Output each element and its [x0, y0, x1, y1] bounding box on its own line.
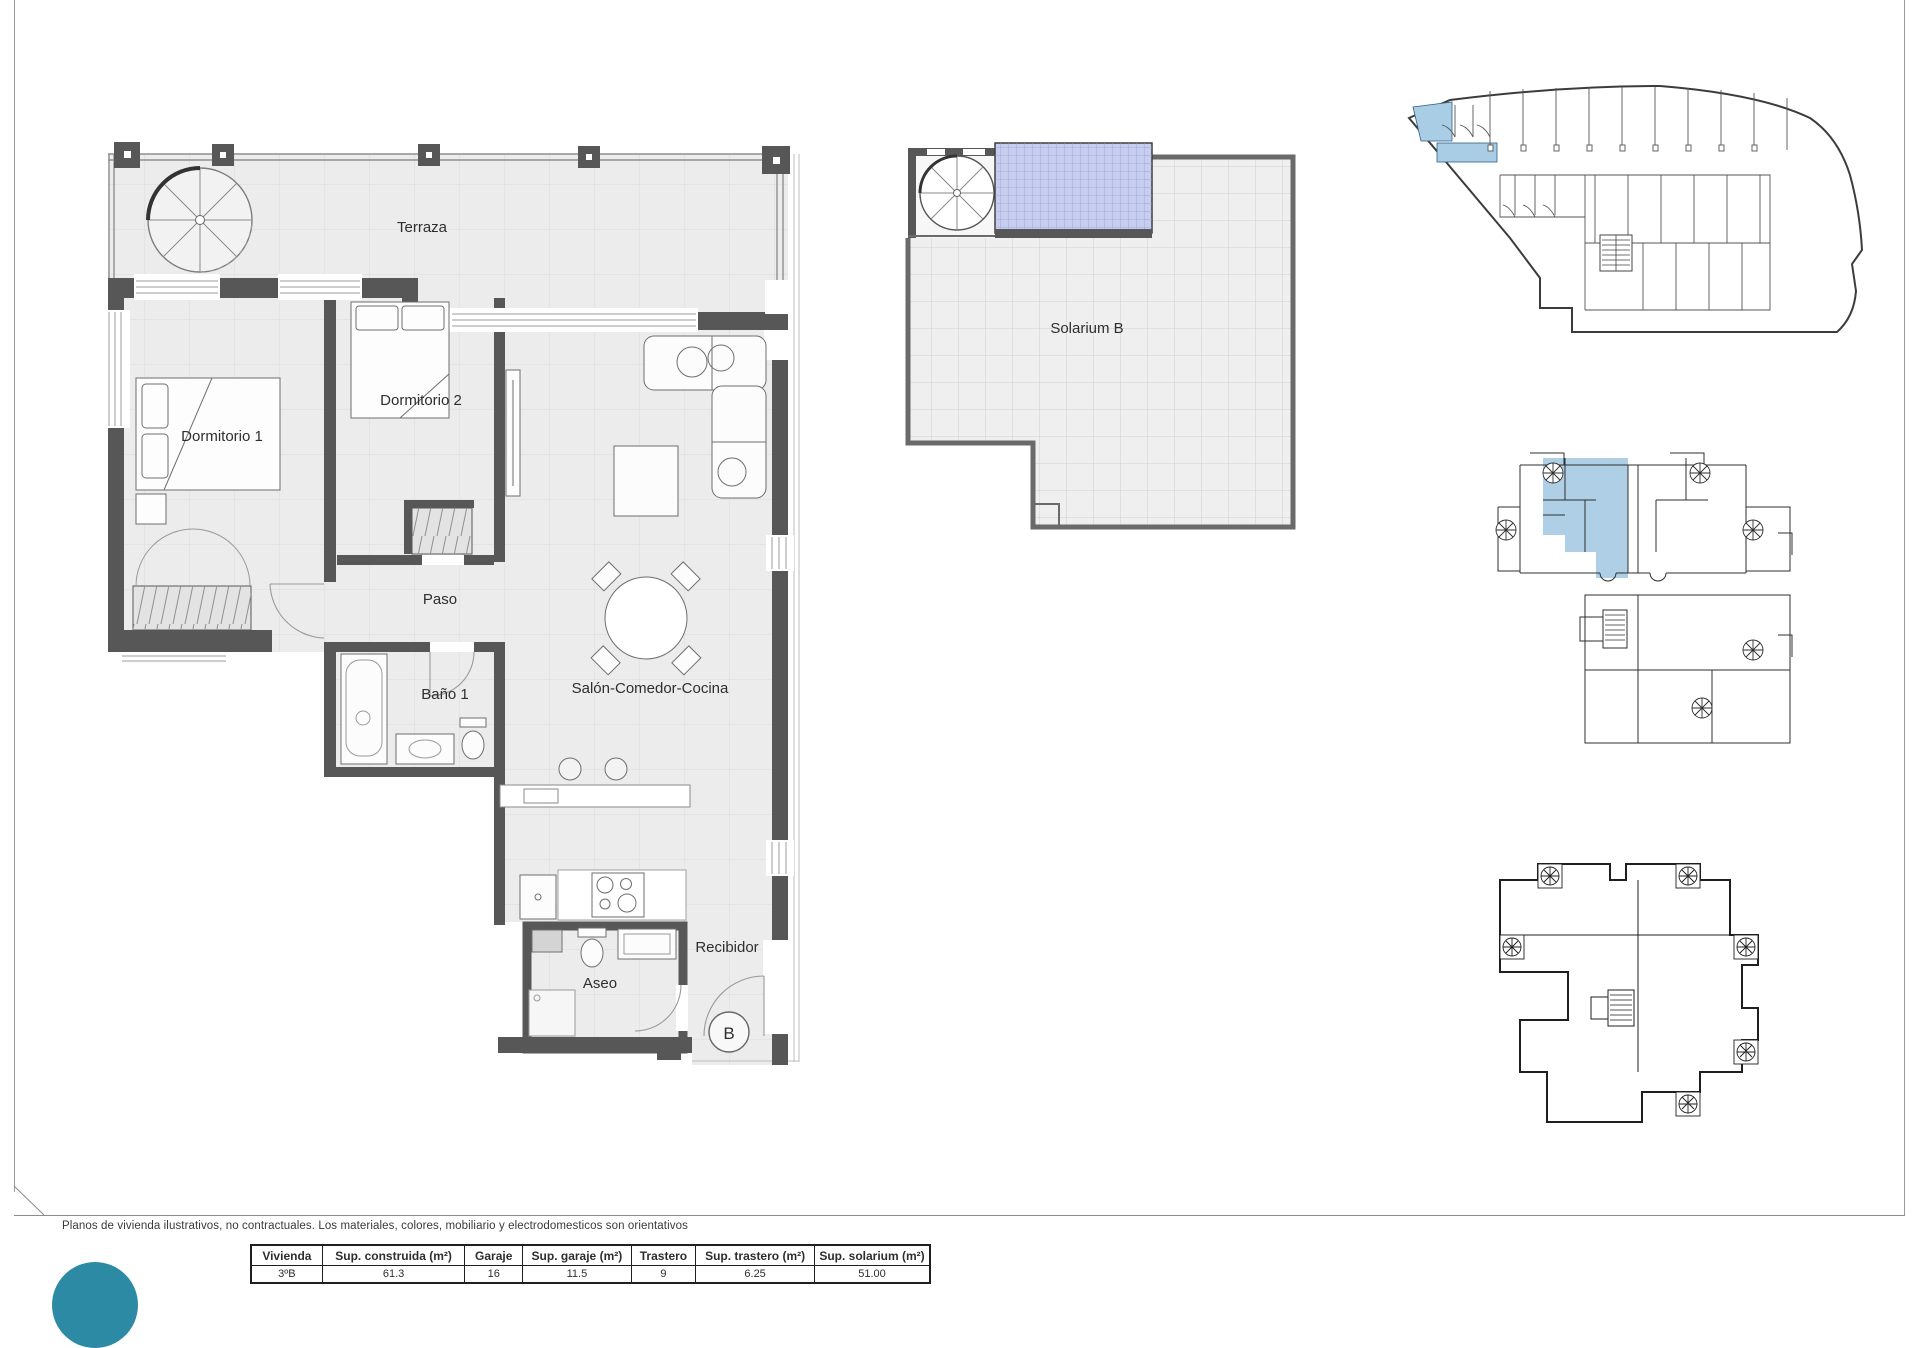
label-salon: Salón-Comedor-Cocina	[572, 680, 729, 697]
building-lines	[1498, 453, 1792, 743]
unit-letter-badge: B	[709, 1012, 749, 1052]
stair-core	[1603, 610, 1627, 648]
coffee-table	[614, 446, 678, 516]
cell-vivienda: 3ºB	[251, 1266, 322, 1284]
floorplan-sheet: { "document": { "disclaimer": "Planos de…	[0, 0, 1920, 1280]
col-sup-construida: Sup. construida (m²)	[322, 1245, 465, 1266]
unit-letter: B	[723, 1024, 734, 1043]
footer-rule	[14, 1215, 1905, 1216]
page-border-right	[1904, 0, 1905, 1215]
cell-sup-construida: 61.3	[322, 1266, 465, 1284]
pergola	[995, 143, 1152, 238]
footer-corner-notch	[10, 1186, 54, 1218]
label-recibidor: Recibidor	[695, 939, 758, 956]
page-border-left	[14, 0, 15, 1192]
wardrobe-dorm2	[412, 508, 472, 554]
col-sup-garaje: Sup. garaje (m²)	[523, 1245, 632, 1266]
label-paso: Paso	[423, 591, 457, 608]
spiral-stair-icons	[1496, 463, 1763, 718]
cell-trastero: 9	[631, 1266, 696, 1284]
label-dormitorio2: Dormitorio 2	[380, 392, 462, 409]
garage-outline	[1409, 86, 1862, 332]
terraza-spiral-stair	[148, 168, 252, 272]
brand-logo-arc	[52, 1262, 138, 1348]
cell-sup-solarium: 51.00	[815, 1266, 930, 1284]
label-solarium: Solarium B	[1050, 320, 1123, 337]
col-trastero: Trastero	[631, 1245, 696, 1266]
table-header-row: Vivienda Sup. construida (m²) Garaje Sup…	[251, 1245, 930, 1266]
cell-sup-trastero: 6.25	[696, 1266, 815, 1284]
col-sup-trastero: Sup. trastero (m²)	[696, 1245, 815, 1266]
cell-sup-garaje: 11.5	[523, 1266, 632, 1284]
label-bano1: Baño 1	[421, 686, 469, 703]
col-sup-solarium: Sup. solarium (m²)	[815, 1245, 930, 1266]
table-data-row: 3ºB 61.3 16 11.5 9 6.25 51.00	[251, 1266, 930, 1284]
main-apartment-plan: B Terraza Dormitorio 1 Dormitorio 2 Paso…	[100, 140, 800, 1070]
disclaimer-text: Planos de vivienda ilustrativos, no cont…	[62, 1220, 688, 1232]
col-vivienda: Vivienda	[251, 1245, 322, 1266]
dining-set	[591, 562, 701, 675]
label-terraza: Terraza	[397, 219, 448, 236]
floor-key-plan	[1490, 445, 1810, 755]
label-dormitorio1: Dormitorio 1	[181, 428, 263, 445]
col-garaje: Garaje	[465, 1245, 523, 1266]
cell-garaje: 16	[465, 1266, 523, 1284]
garage-plan	[1395, 65, 1865, 355]
stair-core	[1600, 235, 1632, 271]
label-aseo: Aseo	[583, 975, 617, 992]
solarium-plan: Solarium B	[905, 140, 1315, 570]
surface-summary-table: Vivienda Sup. construida (m²) Garaje Sup…	[250, 1244, 931, 1284]
solarium-stair-room	[908, 148, 1008, 238]
garage-space-highlight	[1413, 102, 1452, 141]
roof-key-plan	[1490, 840, 1810, 1130]
